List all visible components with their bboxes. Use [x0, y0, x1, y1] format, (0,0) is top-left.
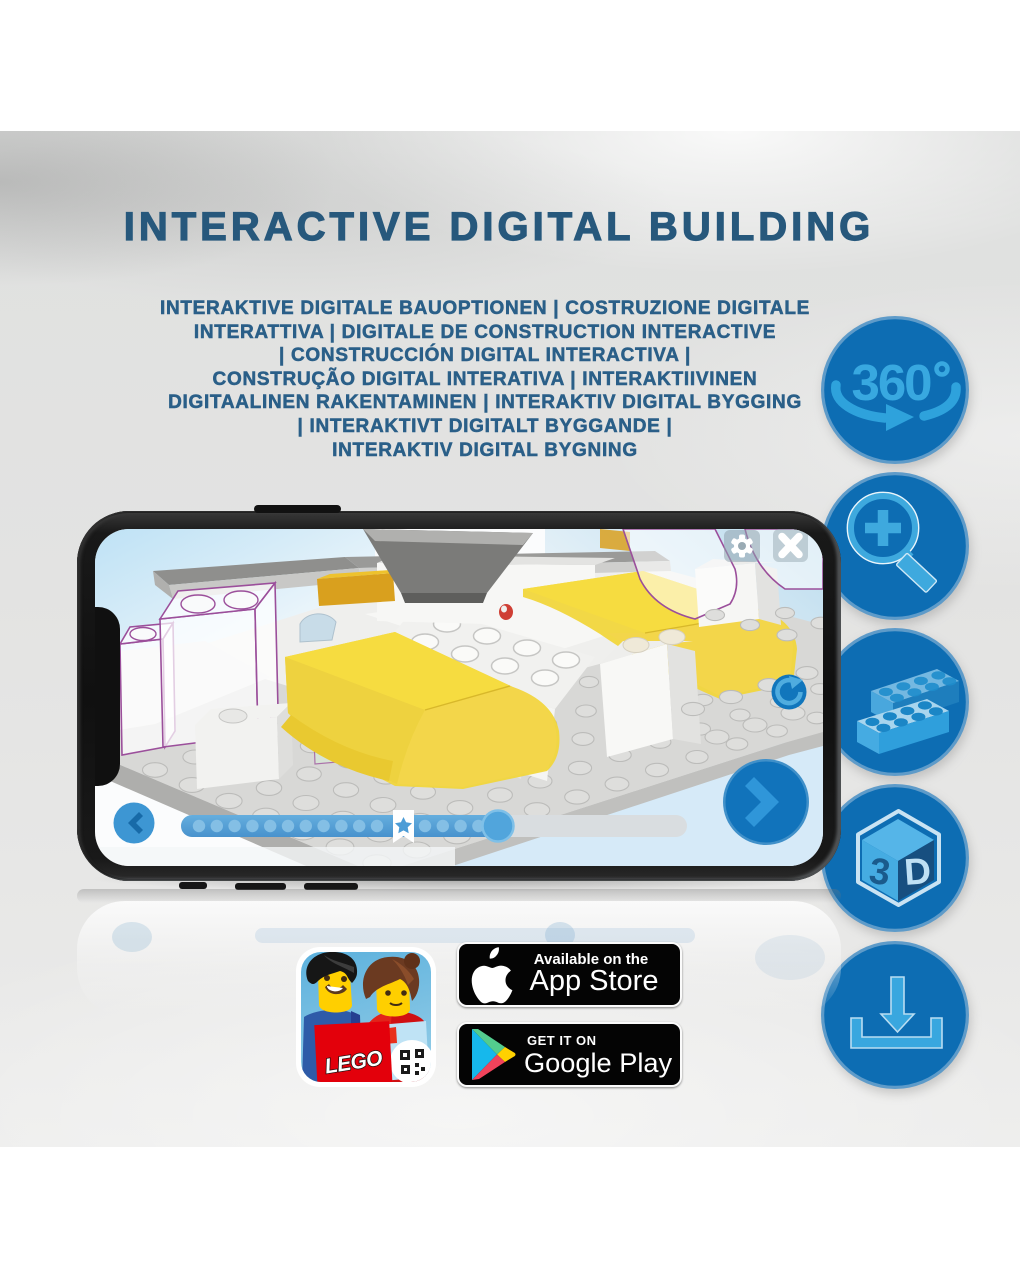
svg-text:D: D [903, 850, 933, 893]
svg-text:GET IT ON: GET IT ON [527, 1033, 597, 1048]
svg-text:360: 360 [851, 354, 931, 411]
svg-text:App Store: App Store [530, 965, 659, 997]
svg-text:Google Play: Google Play [524, 1047, 673, 1078]
